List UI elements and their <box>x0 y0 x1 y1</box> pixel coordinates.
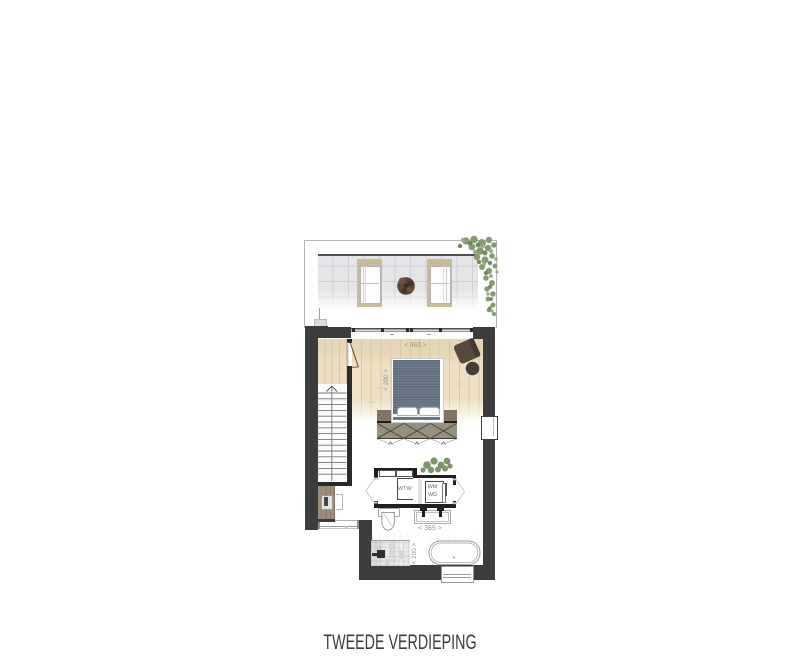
svg-text:WD: WD <box>428 492 437 498</box>
svg-text:< 365 >: < 365 > <box>418 525 442 532</box>
svg-text:< 460 >: < 460 > <box>404 342 427 349</box>
svg-text:< 200 >: < 200 > <box>411 542 418 564</box>
svg-text:WTW: WTW <box>398 486 413 492</box>
svg-text:< 280 >: < 280 > <box>383 368 390 391</box>
svg-text:WM: WM <box>428 484 438 490</box>
